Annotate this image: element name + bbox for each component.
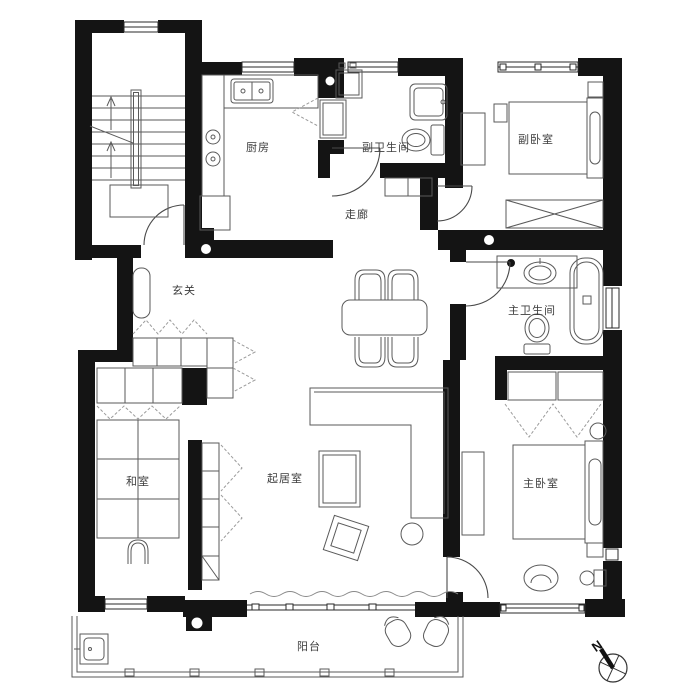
stair-direction-arrows xyxy=(90,97,133,178)
floor-plan: 厨房 副卫生间 副卧室 走廊 玄关 主卫生间 和室 起居室 主卧室 阳台 N xyxy=(0,0,700,700)
tatami-window xyxy=(105,599,147,609)
bed xyxy=(513,441,603,543)
toilet xyxy=(524,314,550,354)
refrigerator xyxy=(320,100,346,138)
stair-window xyxy=(124,22,158,32)
room-label-kitchen: 厨房 xyxy=(246,139,270,155)
nightstand xyxy=(494,104,507,122)
secondary-bathroom-door xyxy=(332,148,380,196)
dining-chair xyxy=(388,270,418,300)
right-wall-vent xyxy=(606,549,618,560)
pillow xyxy=(590,112,600,164)
master-bedroom-window xyxy=(500,604,585,613)
floor-cushion xyxy=(128,540,148,564)
desk xyxy=(462,452,484,535)
dining-chair xyxy=(388,337,418,367)
cabinet-swing-marks xyxy=(133,320,207,334)
hanging-clothes xyxy=(505,404,601,437)
room-label-living-room: 起居室 xyxy=(267,470,303,486)
bathroom-sink xyxy=(410,84,447,120)
kitchen-window xyxy=(242,62,294,72)
room-label-corridor: 走廊 xyxy=(345,206,369,222)
balcony-railing xyxy=(72,616,463,677)
lounge-chair xyxy=(380,612,414,649)
tatami-wardrobe xyxy=(97,368,182,403)
north-arrow xyxy=(599,649,627,682)
side-table xyxy=(401,523,423,545)
master-bedroom-furniture xyxy=(462,423,606,591)
tatami-room-furniture xyxy=(97,368,242,580)
balcony-elements xyxy=(72,612,463,677)
lounge-chair xyxy=(421,612,454,649)
room-label-secondary-bathroom: 副卫生间 xyxy=(362,139,410,155)
stairwell-door xyxy=(144,205,184,245)
stair-landing xyxy=(110,185,168,217)
wardrobe-unit xyxy=(558,372,603,400)
room-label-tatami-room: 和室 xyxy=(126,473,150,489)
kitchen-door-swing xyxy=(292,98,318,126)
bench xyxy=(133,268,150,318)
main-bathroom-door xyxy=(466,262,510,306)
l-sofa xyxy=(310,388,448,518)
main-bathroom-window xyxy=(606,288,619,328)
walkin-closet xyxy=(505,372,603,437)
room-label-master-bedroom: 主卧室 xyxy=(523,475,559,491)
floor-plan-drawing xyxy=(0,0,700,700)
armchair xyxy=(524,565,558,591)
curtain-line xyxy=(250,592,458,597)
sliding-door-marks xyxy=(221,445,242,541)
dining-table xyxy=(342,300,427,335)
column-markers xyxy=(192,77,516,629)
stove-burner xyxy=(206,130,220,144)
wardrobe-unit xyxy=(508,372,556,400)
stair-rail xyxy=(131,90,141,188)
floor-cushion xyxy=(323,515,368,560)
wardrobe-swing-marks xyxy=(97,406,180,419)
wardrobe xyxy=(506,200,603,228)
secondary-bedroom-furniture xyxy=(461,82,603,228)
bathtub xyxy=(570,258,603,344)
tv-shelf xyxy=(202,443,219,580)
desk xyxy=(461,113,485,165)
room-label-secondary-bedroom: 副卧室 xyxy=(518,131,554,147)
nightstand xyxy=(587,543,603,557)
cabinet-swing-marks xyxy=(233,340,255,392)
room-label-entrance-hall: 玄关 xyxy=(172,282,196,298)
kitchen-cabinet xyxy=(200,196,230,230)
dining-chair xyxy=(355,337,385,367)
room-label-main-bathroom: 主卫生间 xyxy=(508,302,556,318)
corner-shelf xyxy=(588,82,603,97)
staircase xyxy=(90,90,185,217)
side-table xyxy=(580,571,594,585)
utility-sink xyxy=(74,634,108,664)
kitchen-sink xyxy=(231,79,273,103)
secondary-bedroom-window xyxy=(498,62,578,72)
room-label-balcony: 阳台 xyxy=(297,638,321,654)
secondary-bedroom-door xyxy=(437,186,472,221)
living-room-furniture xyxy=(250,270,458,597)
pillow xyxy=(589,459,601,525)
coffee-table xyxy=(319,451,360,507)
dining-chair xyxy=(355,270,385,300)
stove-burner xyxy=(206,152,220,166)
balcony-sliding-door xyxy=(247,604,415,610)
